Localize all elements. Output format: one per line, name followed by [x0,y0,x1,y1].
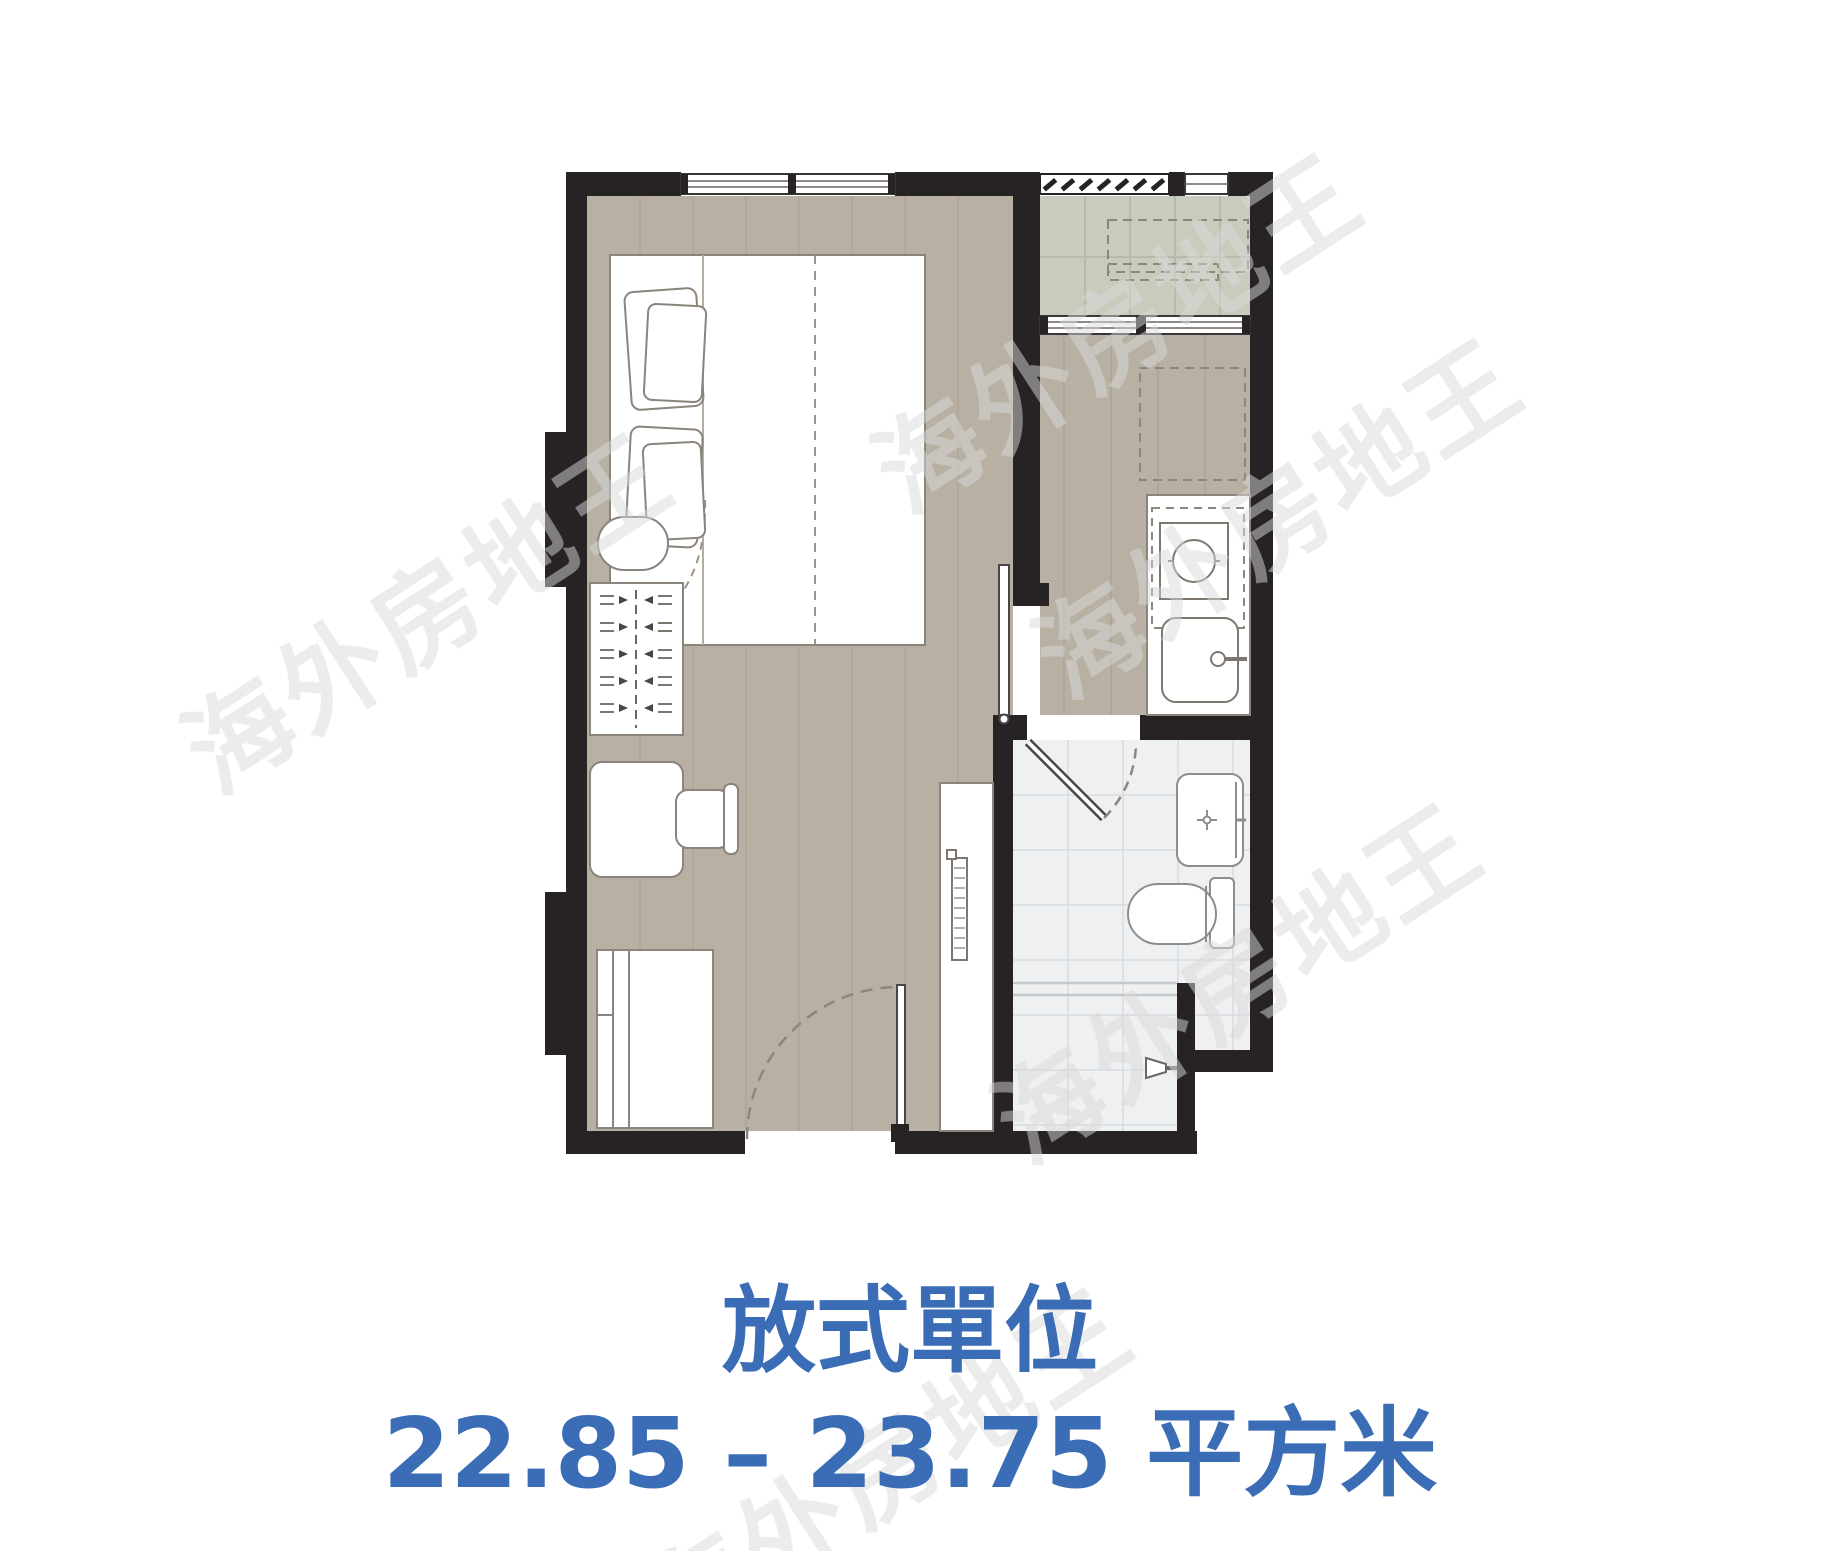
entrance-door-leaf [897,985,905,1131]
wardrobe [597,950,713,1128]
unit-area-caption: 22.85 – 23.75 平方米 [383,1397,1437,1510]
tv [952,858,967,960]
bottom-wall-left [566,1131,745,1154]
sliding-door [999,565,1009,724]
unit-type-caption: 放式單位 [722,1277,1098,1386]
closet [590,583,683,735]
entrance-door-hinge [891,1124,909,1142]
sliding-door-knob [1000,715,1009,724]
wash-basin [1177,774,1246,866]
floor-plan-image: 海外房地王 海外房地王 海外房地王 海外房地王 海外房地王 放式單位 22.85… [0,0,1834,1551]
floor-plan-page: 海外房地王 海外房地王 海外房地王 海外房地王 海外房地王 放式單位 22.85… [0,0,1834,1551]
bathroom-top-wall-left [993,715,1027,740]
bathroom-top-wall-right [1140,715,1250,740]
top-wall-mid [895,172,1040,196]
balcony-louver-vent [1040,174,1169,194]
louver-end-cap [1169,172,1185,196]
column-lower [545,892,587,1055]
sliding-door-panel [999,565,1009,715]
desk-chair [676,784,738,854]
desk [590,762,683,877]
